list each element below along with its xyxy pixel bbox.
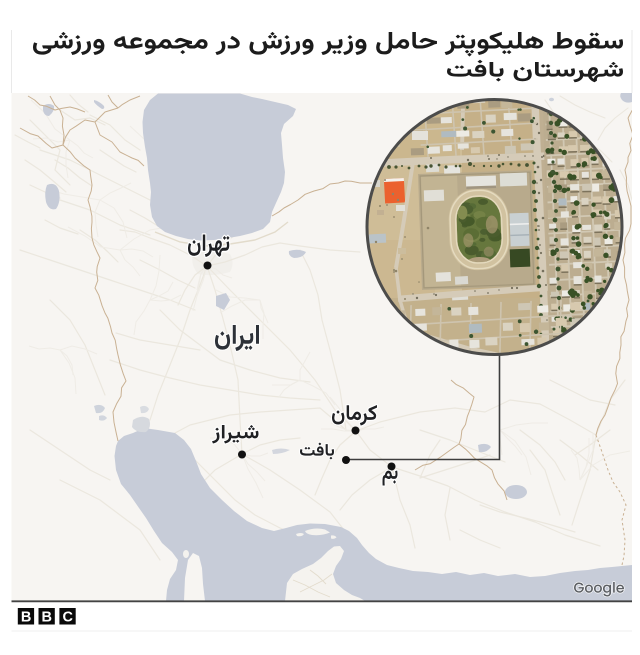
svg-text:B: B — [21, 610, 31, 626]
svg-text:B: B — [42, 610, 52, 626]
svg-text:C: C — [62, 610, 73, 626]
